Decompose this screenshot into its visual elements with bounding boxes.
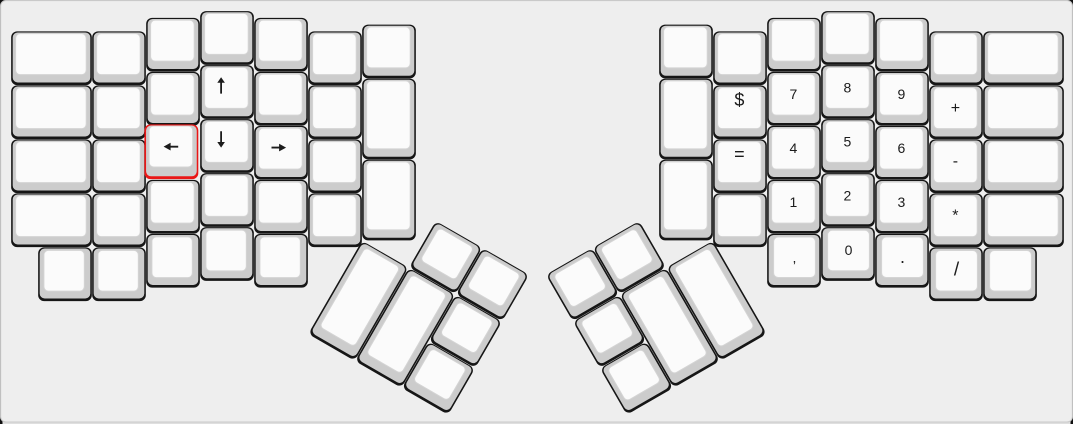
svg-text:=: =	[734, 144, 745, 164]
svg-text:2: 2	[844, 187, 852, 203]
svg-text:+: +	[951, 100, 960, 117]
svg-text:,: ,	[793, 249, 797, 265]
svg-text:5: 5	[844, 133, 852, 149]
svg-text:-: -	[953, 153, 958, 170]
svg-text:4: 4	[790, 140, 798, 156]
svg-text:7: 7	[790, 86, 798, 102]
svg-text:$: $	[734, 90, 744, 110]
svg-text:*: *	[952, 207, 958, 224]
svg-text:1: 1	[790, 194, 798, 210]
svg-text:0: 0	[845, 242, 853, 258]
svg-text:.: .	[900, 247, 905, 267]
svg-text:8: 8	[844, 79, 852, 95]
svg-text:9: 9	[898, 86, 906, 102]
svg-text:6: 6	[898, 140, 906, 156]
svg-text:3: 3	[898, 194, 906, 210]
svg-text:/: /	[954, 259, 960, 280]
